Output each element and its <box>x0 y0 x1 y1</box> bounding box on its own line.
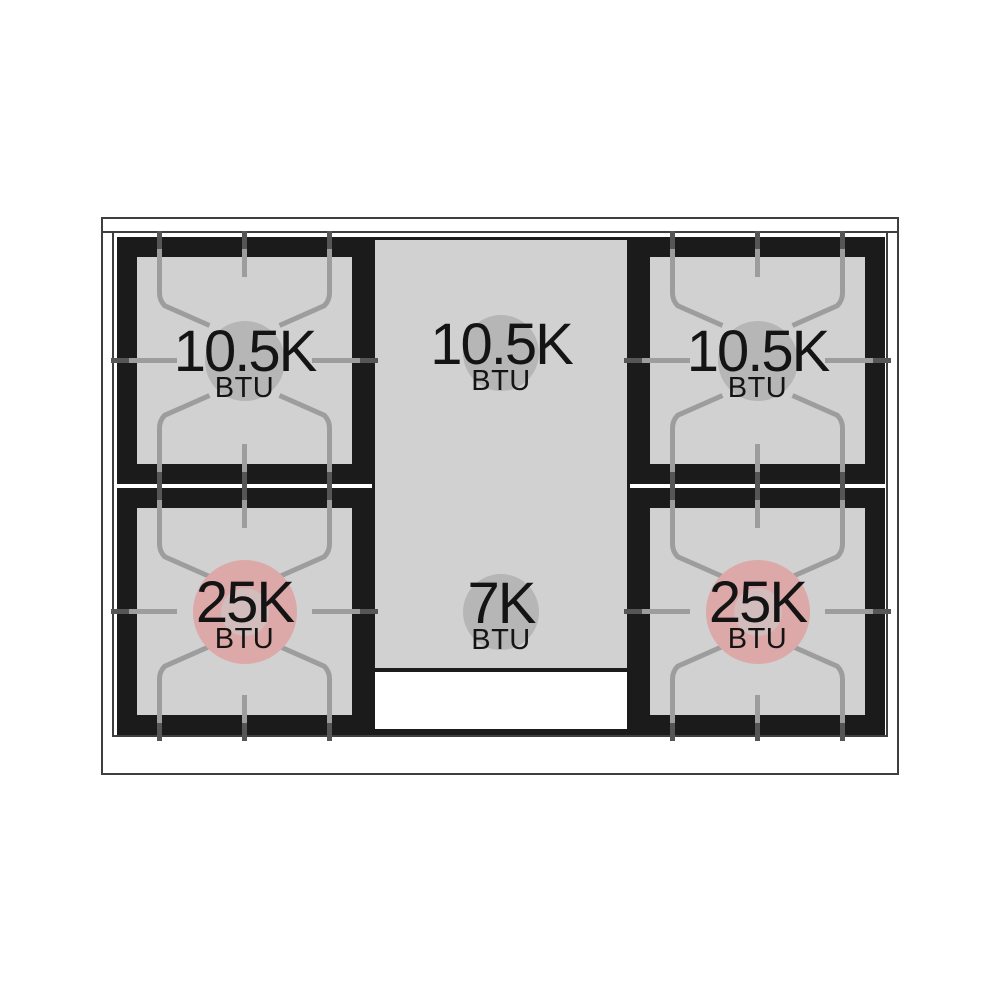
burner-bottom-right-unit-label: BTU <box>630 625 885 654</box>
burner-center-top-unit-label: BTU <box>372 367 630 396</box>
burner-top-left-unit-label: BTU <box>117 374 372 403</box>
center-griddle-module: 10.5K BTU 7K BTU <box>372 237 630 735</box>
burner-top-right-unit-label: BTU <box>630 374 885 403</box>
burner-center-bottom-unit-label: BTU <box>372 626 630 655</box>
range-cooktop-diagram: 10.5K BTU 7K BTU 10.5K BTU 25K BTU <box>0 0 1000 1000</box>
grate-top-right: 10.5K BTU <box>630 237 885 484</box>
burner-bottom-left-unit-label: BTU <box>117 625 372 654</box>
cooktop-outline: 10.5K BTU 7K BTU 10.5K BTU 25K BTU <box>101 217 899 775</box>
grate-top-left: 10.5K BTU <box>117 237 372 484</box>
front-trim-panel <box>375 672 627 729</box>
cooktop-surface: 10.5K BTU 7K BTU 10.5K BTU 25K BTU <box>112 233 888 737</box>
grate-bottom-right: 25K BTU <box>630 488 885 735</box>
grate-bottom-left: 25K BTU <box>117 488 372 735</box>
